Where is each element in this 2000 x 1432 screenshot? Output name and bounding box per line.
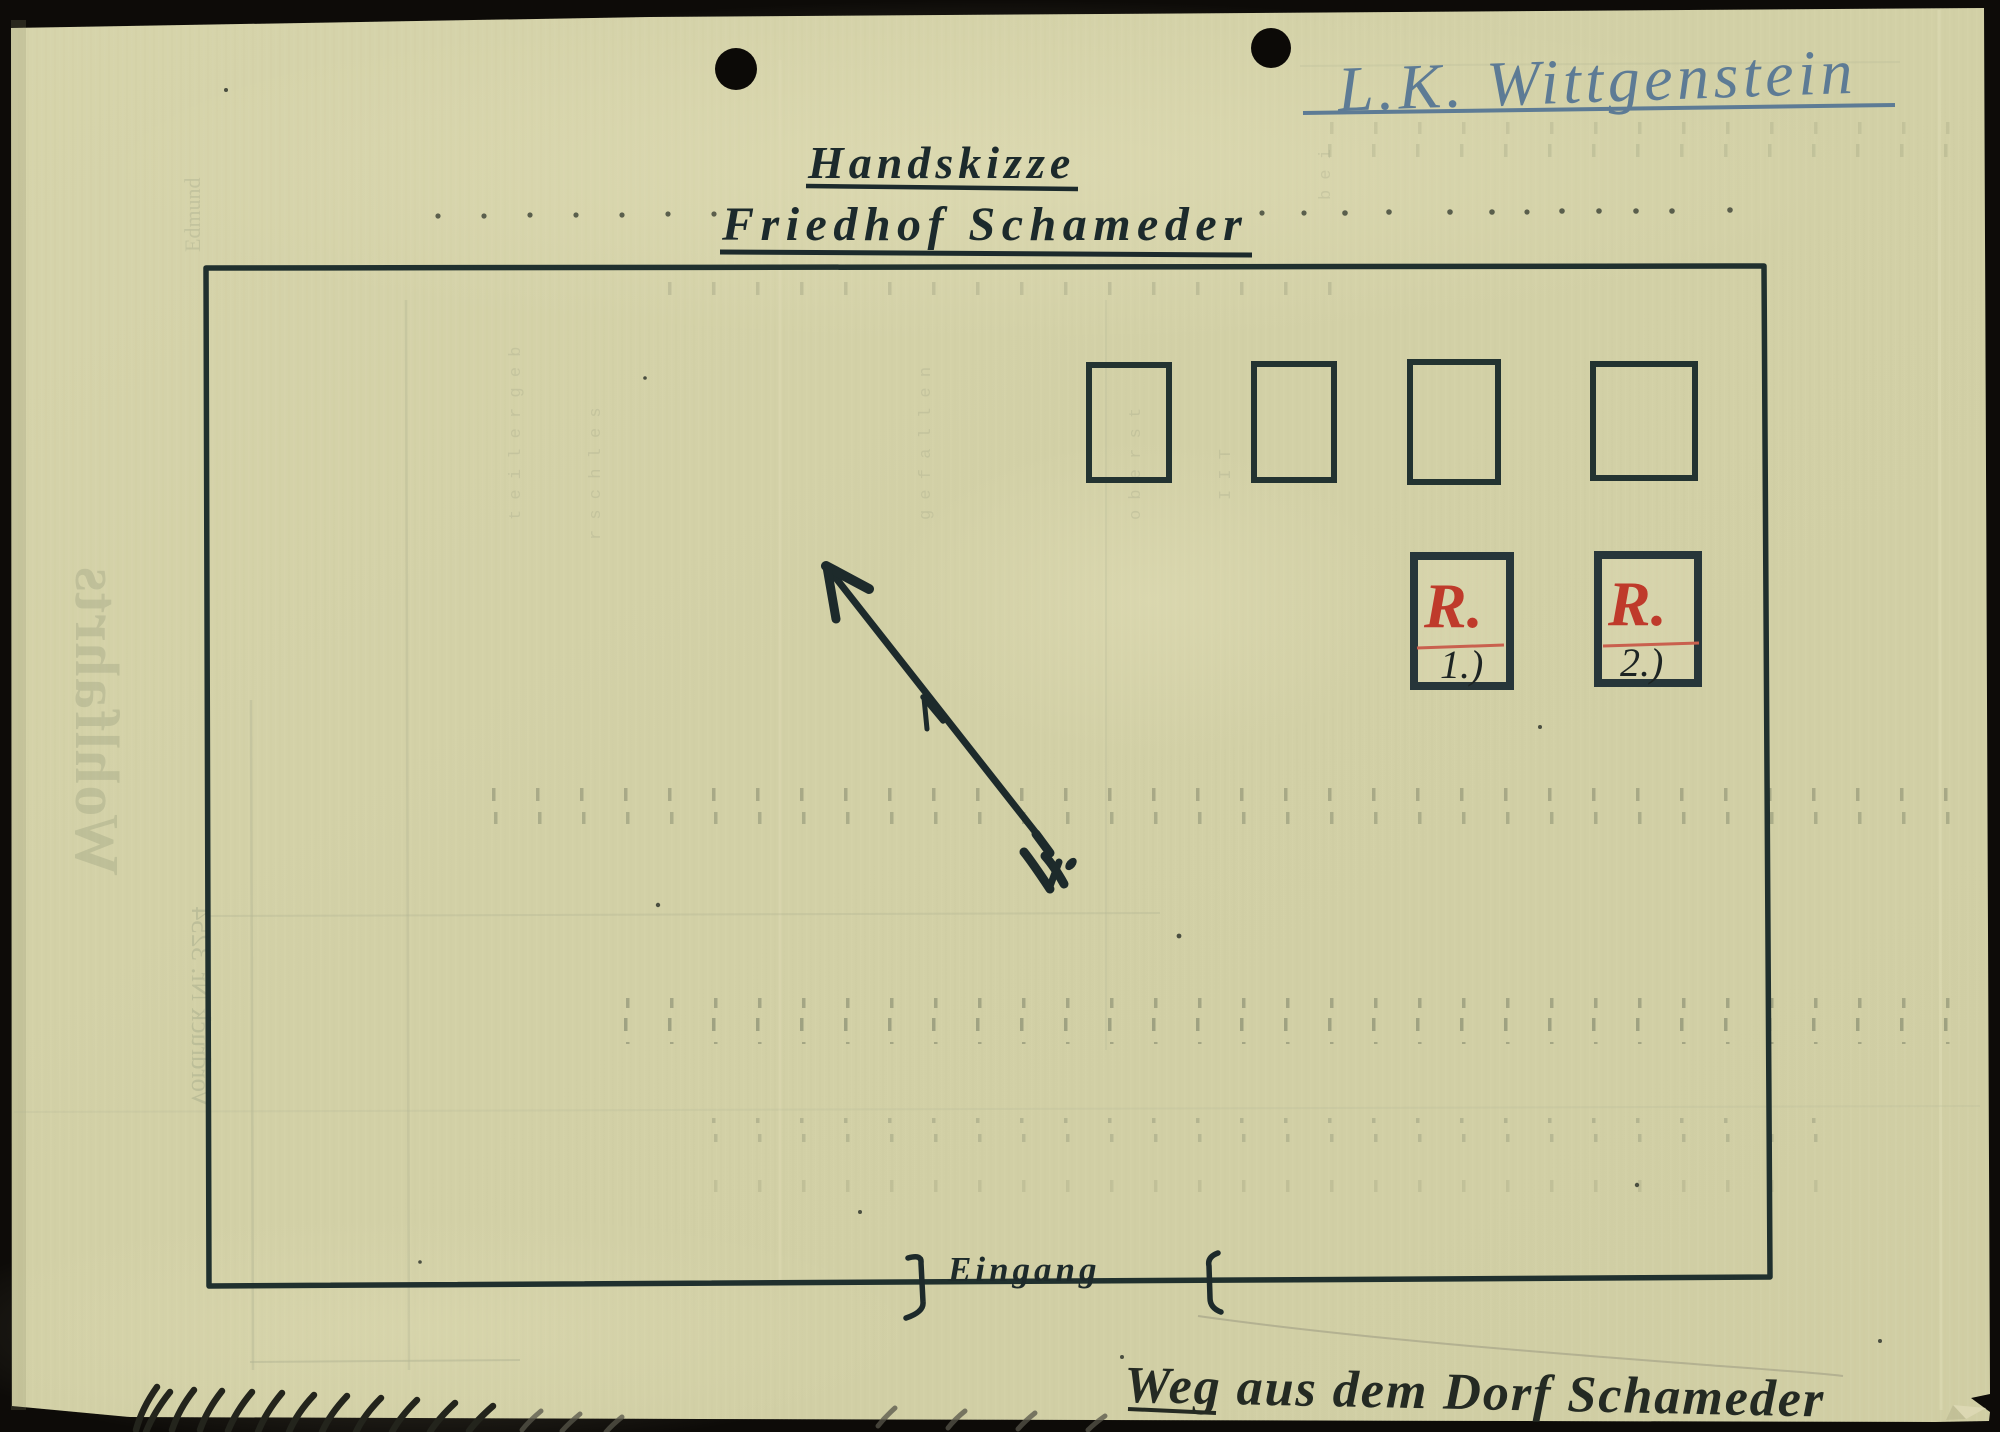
svg-text:r s c h l e s: r s c h l e s <box>587 407 606 540</box>
svg-text:1.): 1.) <box>1440 642 1483 687</box>
svg-text:Wohlfahrts: Wohlfahrts <box>62 566 130 876</box>
svg-text:o b e r s t: o b e r s t <box>1127 408 1146 520</box>
svg-text:2.): 2.) <box>1620 640 1663 685</box>
svg-text:R.: R. <box>1607 568 1667 639</box>
svg-text:Handskizze: Handskizze <box>807 137 1075 188</box>
svg-text:Eingang: Eingang <box>947 1250 1101 1289</box>
svg-text:Friedhof Schameder: Friedhof Schameder <box>721 198 1248 251</box>
svg-text:b e i: b e i <box>1317 149 1336 200</box>
svg-text:t e i l e r g e b: t e i l e r g e b <box>507 347 526 520</box>
svg-text:I I T: I I T <box>1217 449 1236 500</box>
svg-text:g e f a l l e n: g e f a l l e n <box>917 367 936 520</box>
svg-text:Edmund: Edmund <box>180 177 205 252</box>
svg-text:Vordruck Nr. 3254: Vordruck Nr. 3254 <box>186 906 216 1108</box>
svg-text:R.: R. <box>1423 570 1483 641</box>
